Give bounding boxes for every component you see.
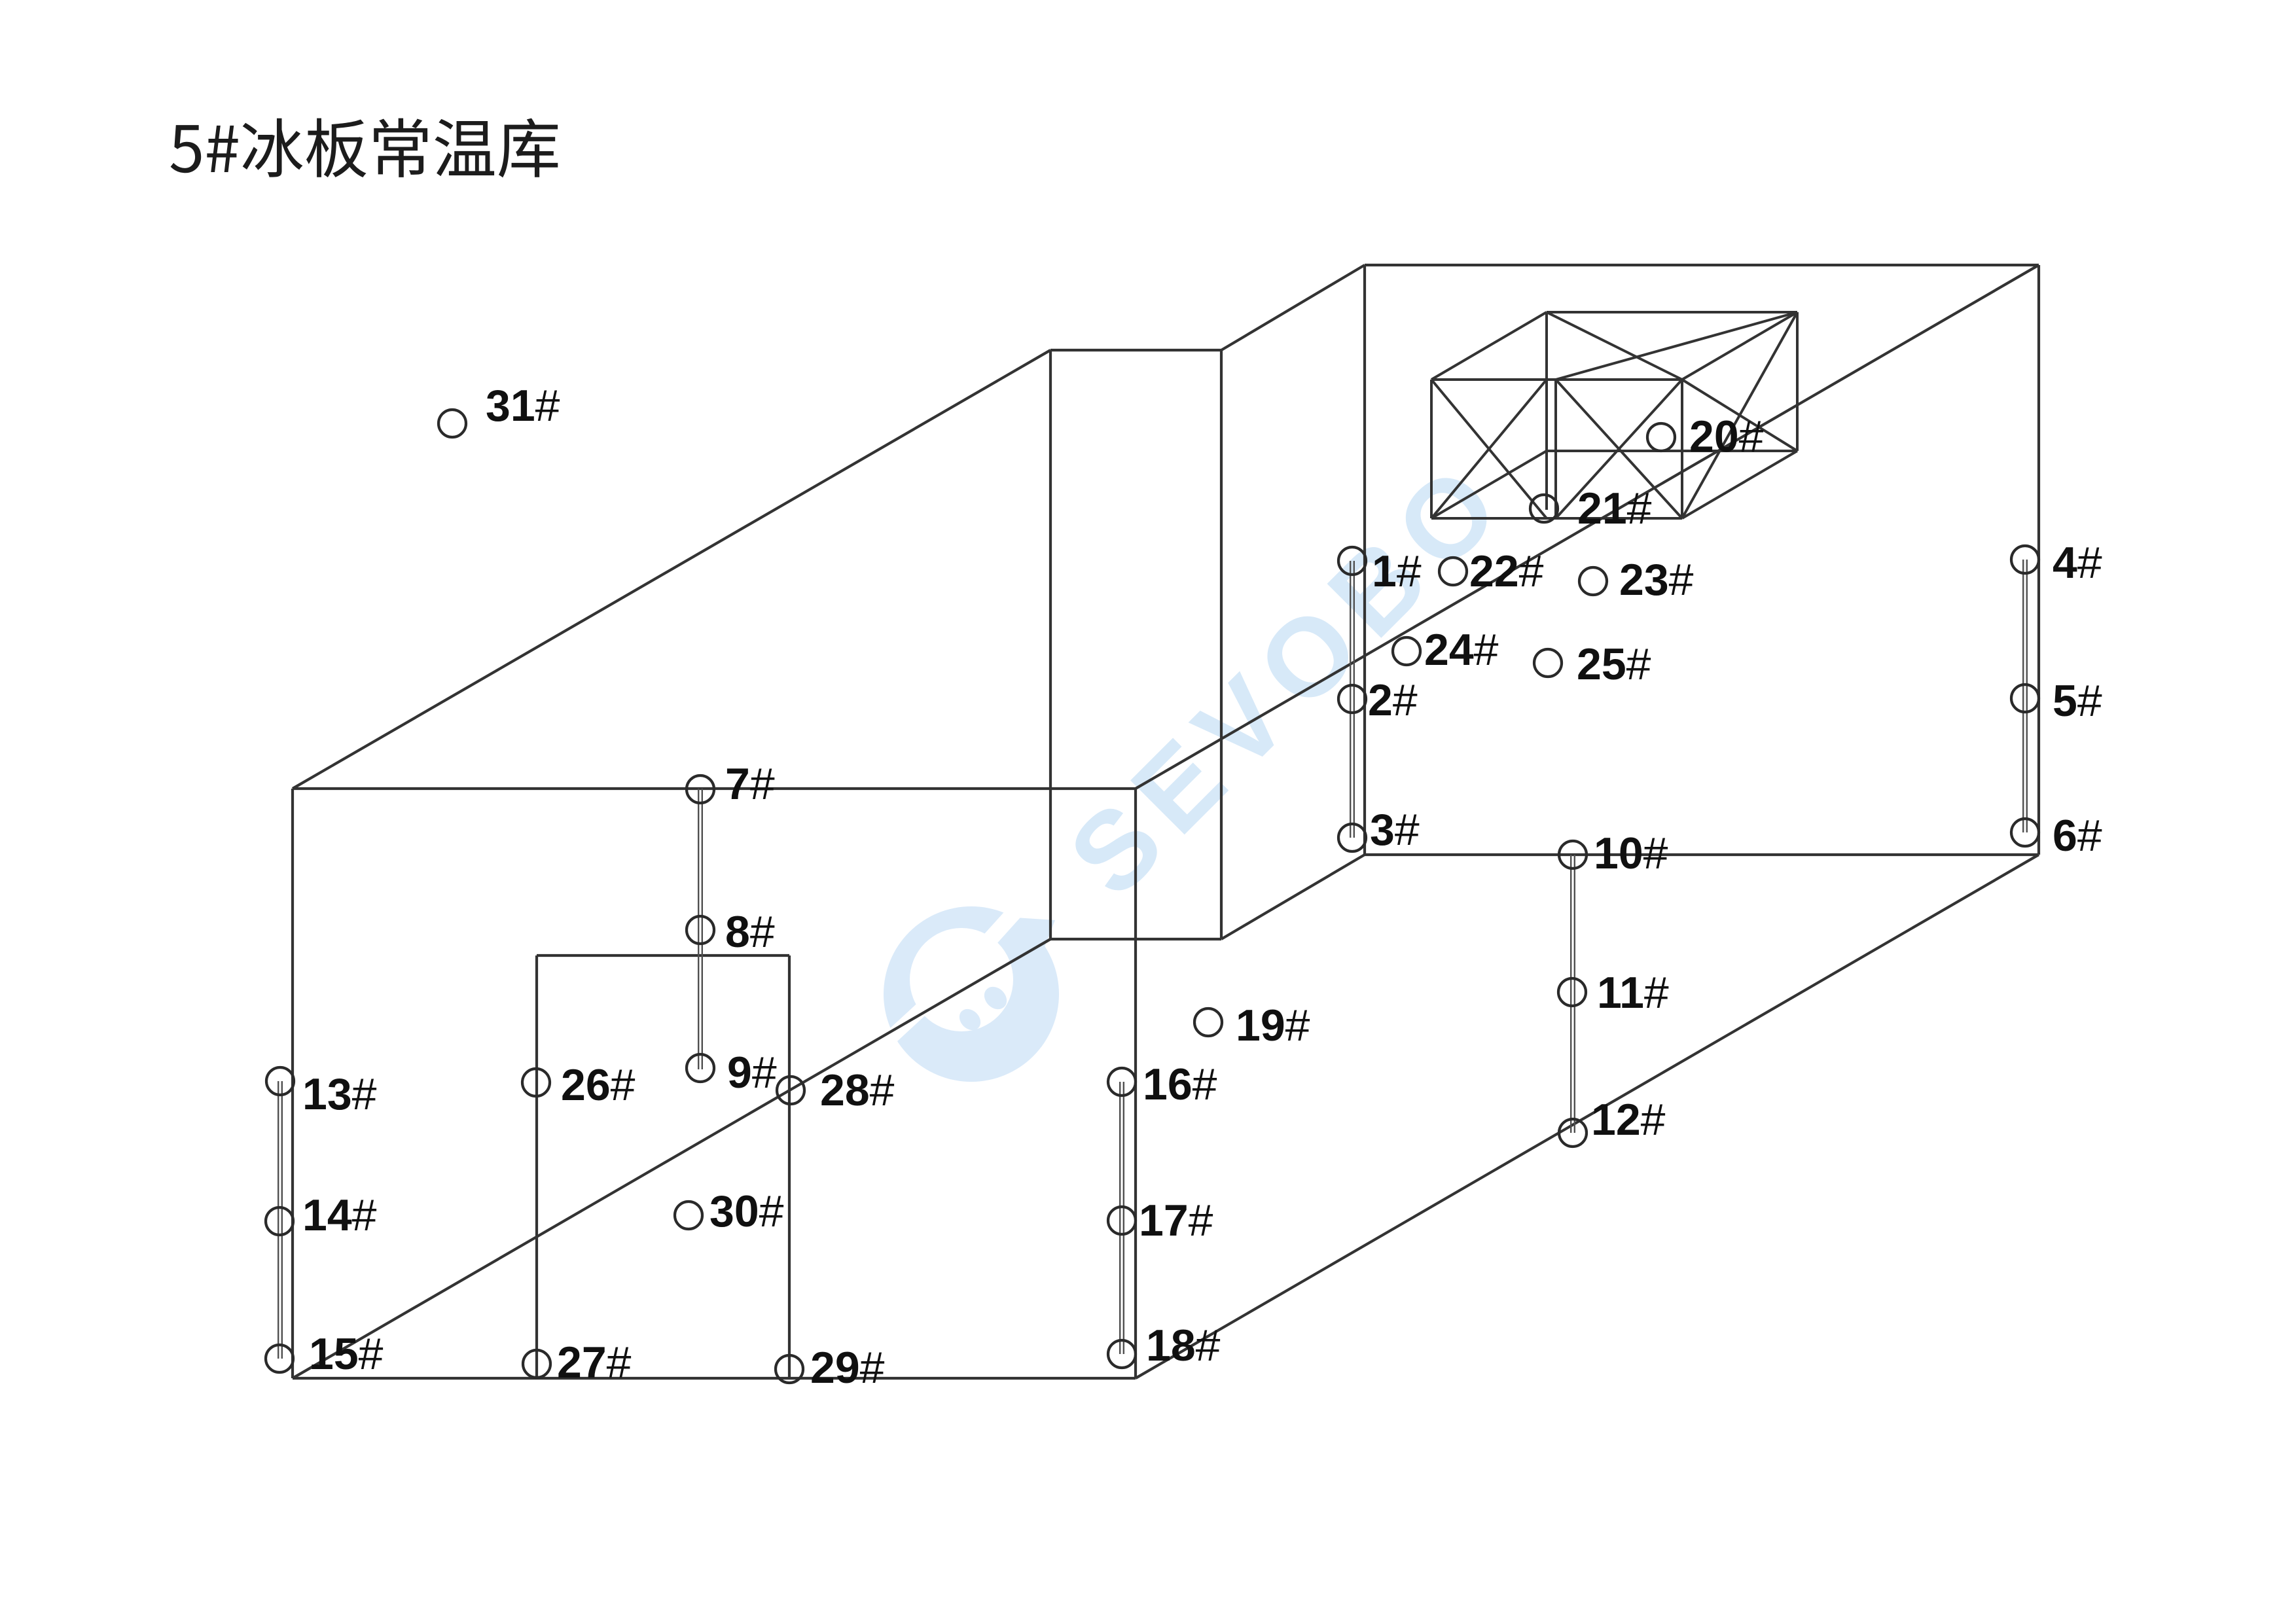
svg-text:4#: 4# xyxy=(2053,538,2102,588)
svg-text:15#: 15# xyxy=(309,1329,384,1379)
svg-text:14#: 14# xyxy=(302,1190,377,1240)
svg-text:31#: 31# xyxy=(486,381,560,431)
svg-text:6#: 6# xyxy=(2053,811,2102,861)
svg-text:12#: 12# xyxy=(1591,1095,1666,1145)
svg-text:30#: 30# xyxy=(709,1186,784,1236)
svg-text:10#: 10# xyxy=(1594,829,1668,878)
svg-text:17#: 17# xyxy=(1139,1196,1213,1245)
svg-text:11#: 11# xyxy=(1597,968,1669,1018)
svg-text:29#: 29# xyxy=(810,1343,885,1393)
svg-text:20#: 20# xyxy=(1689,412,1764,461)
svg-text:24#: 24# xyxy=(1424,625,1499,675)
svg-text:13#: 13# xyxy=(302,1069,377,1119)
svg-text:9#: 9# xyxy=(727,1048,777,1097)
svg-text:26#: 26# xyxy=(561,1060,636,1110)
svg-text:2#: 2# xyxy=(1368,675,1418,725)
svg-text:7#: 7# xyxy=(725,759,775,809)
svg-text:22#: 22# xyxy=(1469,546,1544,596)
svg-text:27#: 27# xyxy=(557,1338,632,1387)
svg-text:21#: 21# xyxy=(1577,484,1652,533)
svg-text:8#: 8# xyxy=(725,907,775,957)
svg-text:28#: 28# xyxy=(820,1065,895,1115)
svg-text:1#: 1# xyxy=(1372,546,1422,596)
svg-text:25#: 25# xyxy=(1577,639,1651,689)
svg-text:23#: 23# xyxy=(1619,555,1694,605)
svg-text:16#: 16# xyxy=(1143,1060,1217,1109)
svg-text:19#: 19# xyxy=(1236,1001,1310,1050)
svg-text:18#: 18# xyxy=(1146,1321,1221,1370)
svg-text:5#: 5# xyxy=(2053,676,2102,726)
svg-text:3#: 3# xyxy=(1370,805,1420,855)
